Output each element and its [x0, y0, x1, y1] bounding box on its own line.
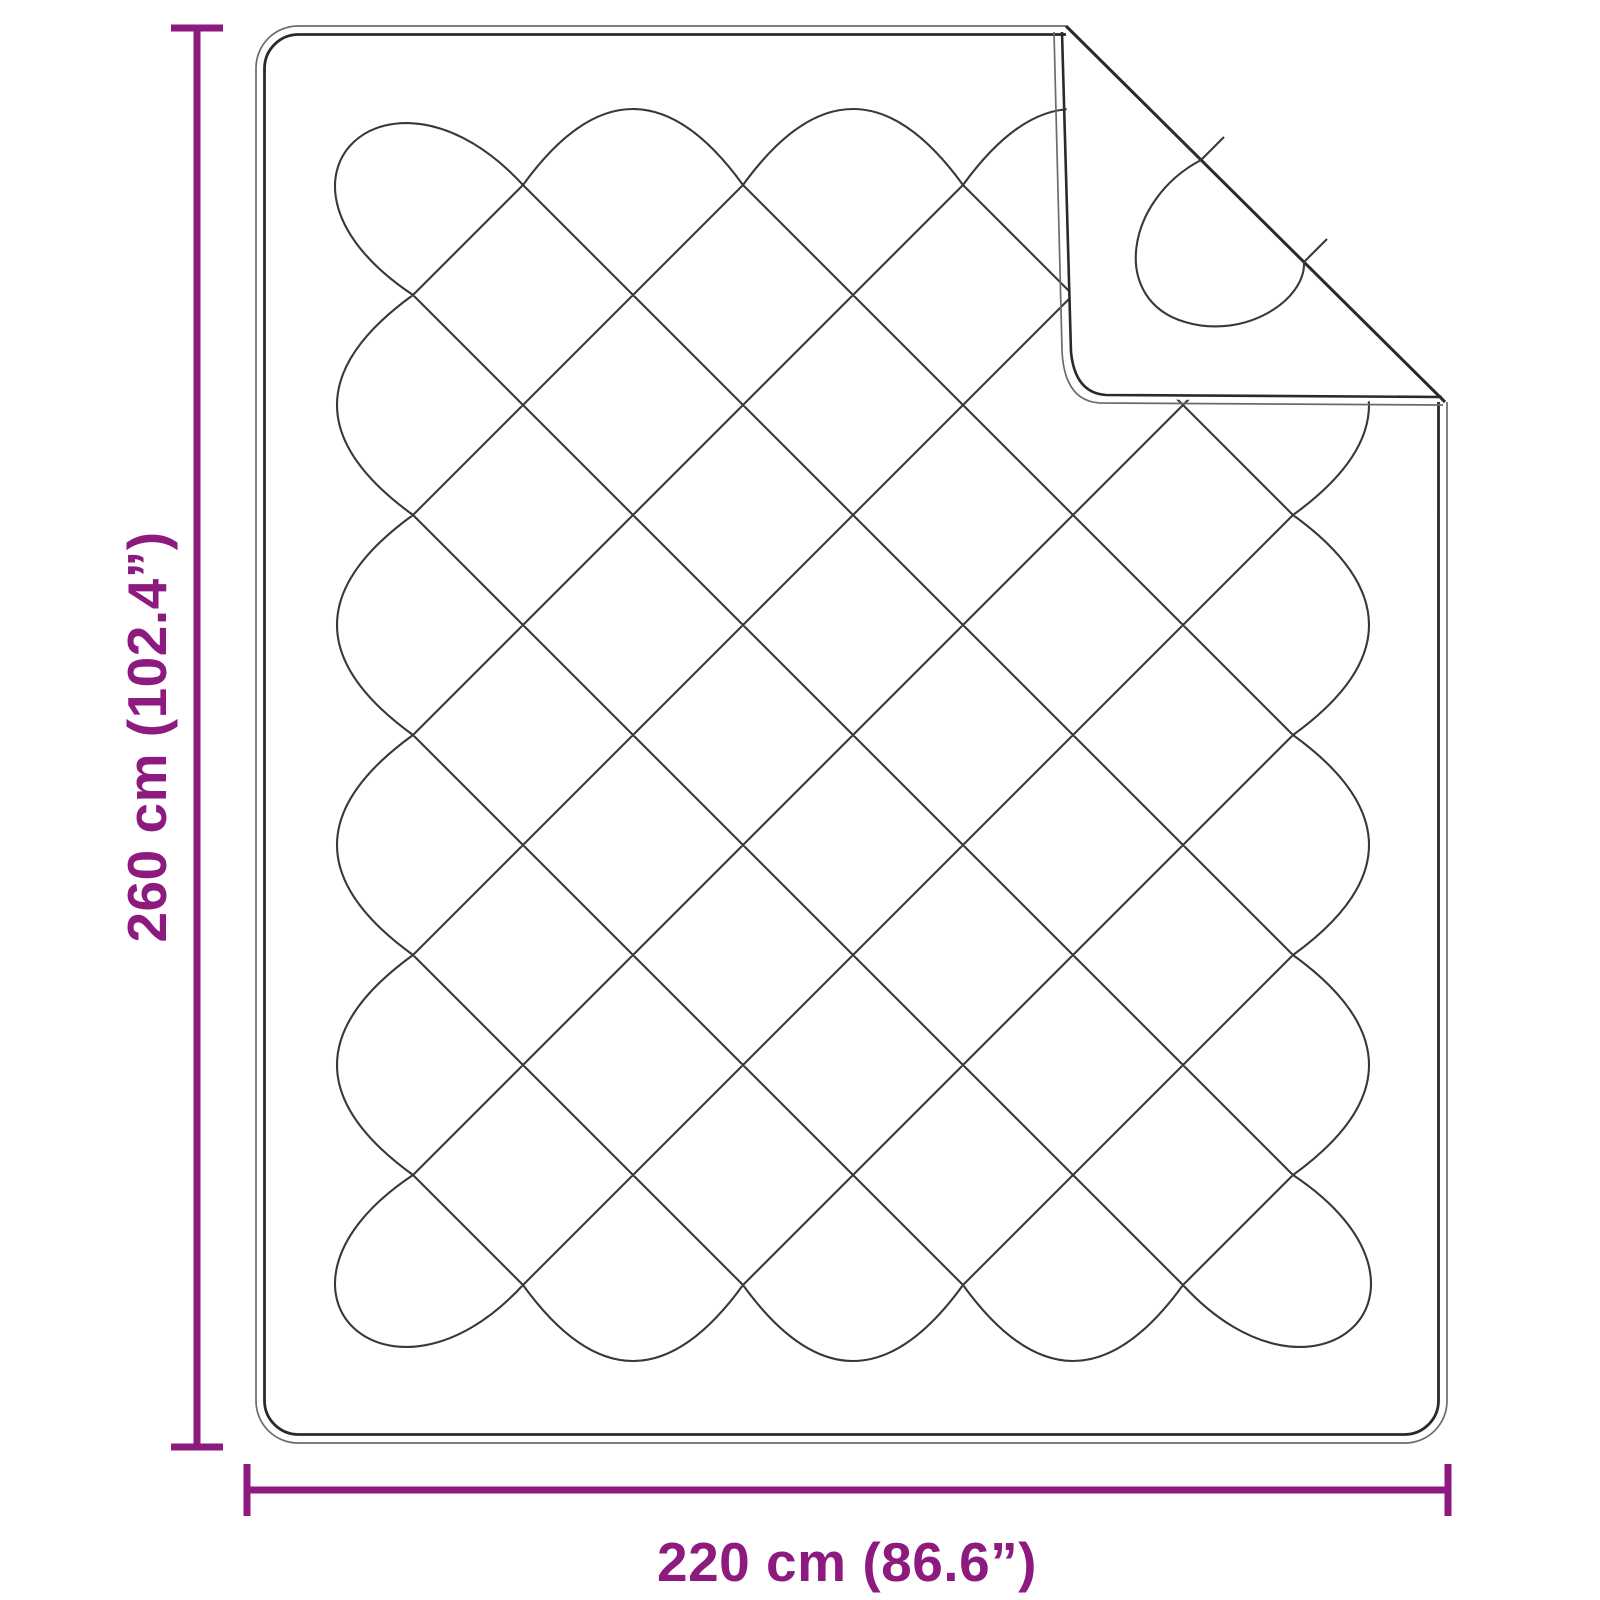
- product-dimension-diagram: 260 cm (102.4”) 220 cm (86.6”): [0, 0, 1600, 1600]
- height-dimension-label: 260 cm (102.4”): [115, 531, 179, 942]
- blanket-illustration: [0, 0, 1600, 1600]
- folded-corner: [1054, 26, 1445, 405]
- width-dimension-label: 220 cm (86.6”): [657, 1530, 1037, 1594]
